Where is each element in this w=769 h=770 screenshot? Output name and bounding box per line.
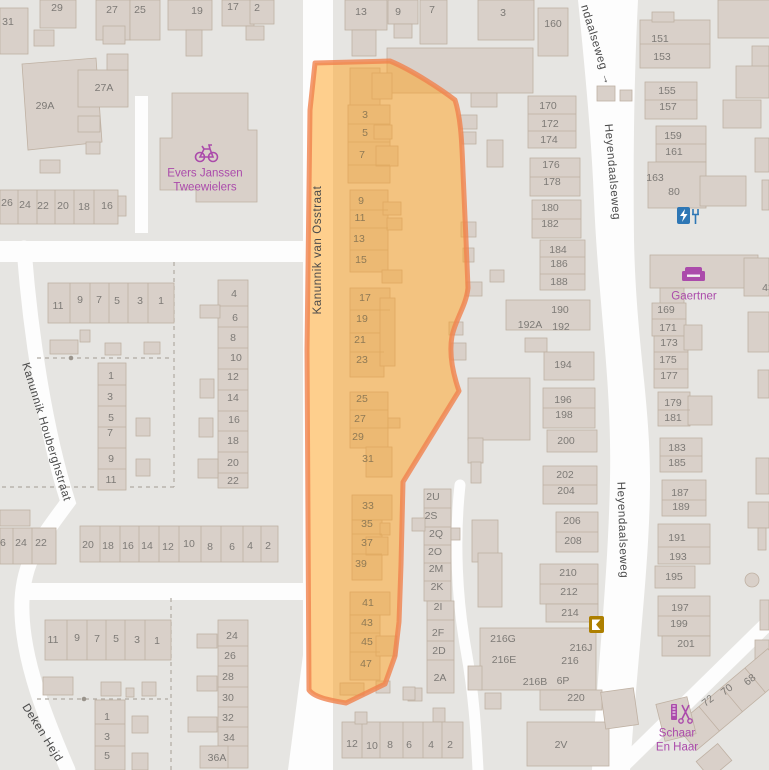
- charging-station-icon: [677, 207, 699, 224]
- sofa-icon: [682, 267, 705, 281]
- map-canvas[interactable]: [0, 0, 769, 770]
- road-segment-small: [135, 96, 148, 233]
- road-horizontal-lower: [20, 583, 303, 600]
- road-horizontal-upper: [0, 241, 303, 262]
- kiosk-icon: [589, 616, 604, 633]
- map-viewport[interactable]: 3129272519172139731601511531551571591611…: [0, 0, 769, 770]
- building-evers-janssen: [160, 93, 257, 202]
